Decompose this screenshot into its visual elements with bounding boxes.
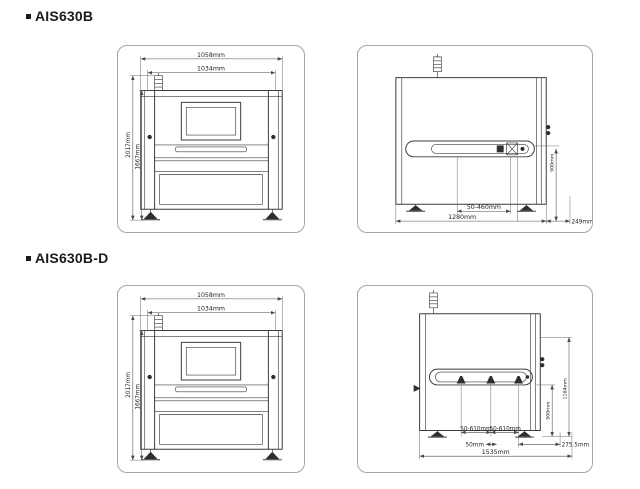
side-view-drawing-ais630b-d: 50-610mm 50-610mm 50mm 275.5mm 1535mm 90… [358, 286, 592, 472]
front-view-drawing-ais630b-d: 1058mm 1034mm 2017mm 1667mm [118, 286, 304, 472]
dim-board-range-right: 50-610mm [489, 426, 521, 432]
left-knob [147, 375, 151, 379]
machine-feet [142, 449, 282, 459]
machine-feet [142, 209, 282, 219]
keyboard-tray [155, 385, 269, 392]
monitor [181, 102, 240, 140]
machine-side-outline [396, 54, 550, 211]
front-view-panel-ais630b-d: 1058mm 1034mm 2017mm 1667mm [117, 285, 305, 473]
dim-height-inner: 1667mm [135, 384, 141, 410]
rear-knob-top [546, 125, 550, 129]
dim-height-outer: 2017mm [126, 372, 132, 398]
front-view-drawing-ais630b: 1058mm 1034mm 2017mm 1667mm [118, 46, 304, 232]
dim-rail-width: 50mm [465, 442, 484, 448]
signal-tower-icon [429, 290, 437, 314]
title-bullet [26, 14, 31, 19]
section-title-ais630b-d: AIS630B-D [26, 250, 108, 266]
machine-front-outline [141, 73, 282, 220]
dim-rear: 275.5mm [562, 442, 590, 448]
dim-rear: 249mm [571, 220, 592, 226]
right-knob [271, 135, 275, 139]
dim-width-inner: 1034mm [197, 66, 225, 73]
rear-knob-bottom [546, 131, 550, 135]
machine-side-outline [414, 290, 545, 437]
dim-height-inner: 1667mm [135, 144, 141, 170]
datasheet-page: AIS630B [0, 0, 640, 489]
dim-width-outer: 1058mm [197, 52, 225, 59]
dimensions: 50-460mm 1280mm 249mm 900mm [396, 146, 592, 226]
keyboard-tray [155, 145, 269, 152]
conveyor-slot [406, 141, 535, 157]
dim-depth: 1280mm [448, 214, 476, 221]
dim-width-outer: 1058mm [197, 292, 225, 299]
signal-tower-icon [155, 313, 163, 331]
rear-knob-bottom [540, 363, 544, 367]
machine-front-outline [141, 313, 282, 460]
dim-depth: 1535mm [482, 449, 510, 456]
section-title-ais630b: AIS630B [26, 8, 93, 24]
dim-total-height: 1164mm [563, 378, 569, 400]
conveyor-slot [429, 369, 532, 385]
monitor [181, 342, 240, 380]
side-view-panel-ais630b-d: 50-610mm 50-610mm 50mm 275.5mm 1535mm 90… [357, 285, 593, 473]
right-knob [271, 375, 275, 379]
lower-cabinet [155, 158, 269, 204]
dim-conveyor-height: 900mm [550, 153, 556, 172]
signal-tower-icon [433, 54, 441, 78]
model-name: AIS630B [35, 8, 93, 24]
dim-height-outer: 2017mm [126, 132, 132, 158]
side-view-drawing-ais630b: 50-460mm 1280mm 249mm 900mm [358, 46, 592, 232]
rear-knob-top [540, 357, 544, 361]
dim-conveyor-height: 900mm [546, 401, 552, 420]
model-name: AIS630B-D [35, 250, 108, 266]
lower-cabinet [155, 398, 269, 444]
dim-board-range: 50-460mm [467, 204, 501, 211]
signal-tower-icon [155, 73, 163, 91]
dimensions: 50-610mm 50-610mm 50mm 275.5mm 1535mm 90… [420, 337, 590, 459]
dim-width-inner: 1034mm [197, 306, 225, 313]
left-knob [147, 135, 151, 139]
title-bullet [26, 256, 31, 261]
front-view-panel-ais630b: 1058mm 1034mm 2017mm 1667mm [117, 45, 305, 233]
side-view-panel-ais630b: 50-460mm 1280mm 249mm 900mm [357, 45, 593, 233]
dim-board-range-left: 50-610mm [460, 426, 492, 432]
